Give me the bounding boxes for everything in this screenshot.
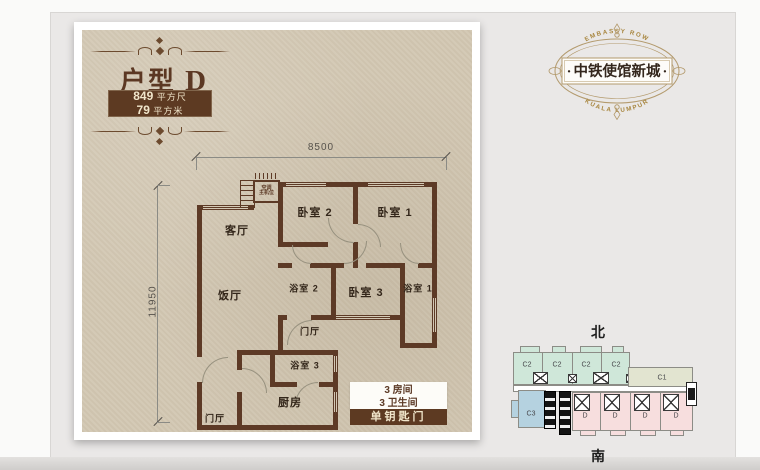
dimension-width-label: 8500 [196, 142, 446, 153]
door-arc [292, 245, 311, 264]
room-label-bath3: 浴室 3 [290, 359, 320, 372]
ornament-diamond [156, 127, 164, 135]
elevator-core [544, 391, 556, 429]
logo-name-text: ·中铁使馆新城· [567, 62, 668, 80]
ornament-star [156, 138, 163, 145]
dimension-extension [196, 157, 197, 170]
room-label-dining: 饭厅 [218, 287, 242, 303]
ac-label-line2: 主机位 [255, 191, 278, 196]
dimension-height-line [157, 185, 158, 422]
shaft-x-box [604, 394, 620, 411]
room-label-bed2: 卧室 2 [297, 204, 332, 220]
room-label-bath1: 浴室 1 [403, 282, 433, 295]
keyplan-balcony [670, 430, 684, 436]
room-label-bed1: 卧室 1 [377, 204, 412, 220]
wall [270, 382, 297, 387]
wall [390, 315, 400, 320]
ornament-flourish-bottom [90, 118, 230, 144]
compass-south: 南 [558, 446, 638, 466]
ornament-curl [168, 47, 182, 55]
shaft-x-box [634, 394, 650, 411]
area-sqm-unit: 平方米 [153, 106, 183, 116]
shaft-x-box [663, 394, 679, 411]
shaft-x-box [533, 372, 548, 384]
ornament-line [90, 51, 136, 52]
ornament-curl [168, 127, 182, 135]
window [368, 182, 424, 187]
shaft-x-box [593, 372, 609, 384]
wall [331, 263, 336, 320]
elevator-core [559, 391, 571, 435]
area-badge: 849 平方尺 79 平方米 [108, 90, 212, 117]
unit-label-c3: C3 [527, 411, 536, 418]
keyplan-balcony [610, 430, 626, 436]
wall [197, 205, 202, 357]
logo-name: 中铁使馆新城 [574, 62, 661, 80]
unit-label-d: D [612, 413, 617, 420]
door-arc [242, 368, 267, 393]
wall [197, 425, 338, 430]
window [333, 356, 338, 372]
room-label-living: 客厅 [225, 222, 249, 238]
window [286, 182, 326, 187]
ac-ladder [240, 180, 255, 208]
window [432, 298, 437, 332]
keyplan: 北 C2 C2 C2 C2 C1 D D D D C3 南 [500, 322, 735, 470]
wall [197, 382, 202, 430]
wall [237, 392, 242, 430]
ornament-diamond [156, 47, 164, 55]
ornament-line [184, 131, 230, 132]
unit-label-c2: C2 [612, 362, 621, 369]
ornament-curl [138, 127, 152, 135]
unit-label-c2: C2 [523, 362, 532, 369]
ornament-curl [138, 47, 152, 55]
door-arc [344, 241, 367, 264]
ac-grille [255, 173, 279, 179]
wall [278, 315, 283, 355]
keyplan-divider [660, 393, 661, 430]
compass-north: 北 [558, 322, 638, 342]
room-label-bath2: 浴室 2 [289, 282, 319, 295]
wall [278, 263, 292, 268]
dimension-extension [446, 157, 447, 170]
logo-dot-right: · [663, 64, 668, 80]
wall [366, 263, 400, 268]
unit-summary-box: 3 房间 3 卫生间 [350, 382, 447, 409]
ornament-line [184, 51, 230, 52]
room-label-hall-entry: 门厅 [205, 412, 225, 425]
wall [310, 263, 344, 268]
logo-dot-left: · [567, 64, 572, 80]
door-arc [328, 218, 354, 243]
keyplan-divider [630, 393, 631, 430]
wall [237, 350, 242, 370]
wall [400, 343, 437, 348]
room-label-hall-mid: 门厅 [300, 325, 320, 338]
stairs-core [688, 388, 695, 400]
wall [418, 263, 437, 268]
unit-label-d: D [642, 413, 647, 420]
room-label-kitchen: 厨房 [278, 394, 302, 410]
ornament-line [90, 131, 136, 132]
keyplan-balcony [580, 430, 596, 436]
svg-text:KUALA LUMPUR: KUALA LUMPUR [583, 98, 650, 114]
unit-label-c1: C1 [658, 375, 667, 382]
dimension-extension [157, 185, 170, 186]
summary-rooms: 3 房间 [350, 384, 447, 397]
wall [400, 263, 405, 348]
room-label-bed3: 卧室 3 [348, 284, 383, 300]
wall [319, 382, 333, 387]
kraft-paper: 户型 D 849 平方尺 79 平方米 8500 11950 [82, 30, 472, 432]
logo-arc-bottom-text: KUALA LUMPUR [583, 98, 650, 114]
floorplan-card: 户型 D 849 平方尺 79 平方米 8500 11950 [74, 22, 480, 440]
unit-label-c2: C2 [553, 362, 562, 369]
unit-label-d: D [582, 413, 587, 420]
area-sqm-value: 79 [137, 103, 150, 117]
project-logo: EMBASSY ROW KUALA LUMPUR ·中铁使馆新城· [542, 20, 692, 120]
dimension-extension [157, 422, 170, 423]
shaft-x-box [568, 374, 577, 383]
window [334, 315, 390, 320]
keyplan-divider [600, 393, 601, 430]
wall [237, 350, 338, 355]
area-sqft-unit: 平方尺 [157, 92, 187, 102]
ornament-star [156, 37, 163, 44]
unit-label-d: D [673, 413, 678, 420]
keyplan-balcony [640, 430, 656, 436]
area-sqft-value: 849 [133, 89, 153, 103]
window [333, 392, 338, 412]
shaft-x-box [574, 394, 590, 411]
door-arc [400, 243, 419, 264]
wall [270, 355, 275, 382]
keyplan-unit-c3 [518, 390, 546, 428]
keyplan-unit-c3-notch [511, 400, 519, 418]
brochure-page: { "page": {"background": "#eae8e7", "car… [0, 0, 760, 470]
door-arc [202, 357, 228, 383]
single-key-banner: 单钥匙门 [350, 409, 447, 425]
dimension-width-line [196, 157, 446, 158]
unit-label-c2: C2 [582, 362, 591, 369]
ac-unit-box: 空调 主机位 [253, 180, 280, 203]
